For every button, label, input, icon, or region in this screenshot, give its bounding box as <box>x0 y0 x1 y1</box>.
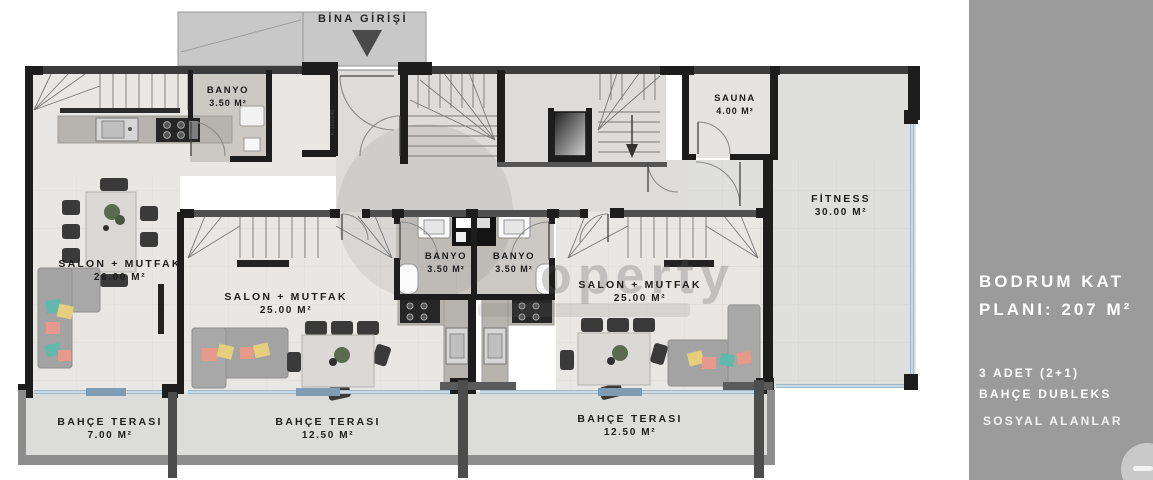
room-label-banyo-1: BANYO 3.50 M² <box>207 84 249 110</box>
room-label-salon-1: SALON + MUTFAK 26.00 M² <box>58 258 181 284</box>
room-label-terrace-2: BAHÇE TERASI 12.50 M² <box>275 416 380 442</box>
sidebar: BODRUM KAT PLANI: 207 M² 3 ADET (2+1) BA… <box>969 0 1153 480</box>
tv-unit-1 <box>158 284 164 334</box>
door-tag-label: K-150/240 <box>330 110 336 135</box>
room-label-salon-3: SALON + MUTFAK 25.00 M² <box>578 279 701 305</box>
room-label-terrace-3: BAHÇE TERASI 12.50 M² <box>577 413 682 439</box>
plan-title-line-2: PLANI: 207 M² <box>979 300 1132 320</box>
room-label-terrace-1: BAHÇE TERASI 7.00 M² <box>57 416 162 442</box>
room-label-salon-2: SALON + MUTFAK 25.00 M² <box>224 291 347 317</box>
plan-info-type: BAHÇE DUBLEKS <box>979 387 1112 401</box>
entrance-label: BİNA GİRİŞİ <box>318 13 408 25</box>
floor-plan-page: K-150/240 BİNA GİRİŞİ BANYO 3.50 M² SAUN… <box>0 0 1153 480</box>
room-label-banyo-3: BANYO 3.50 M² <box>493 250 535 276</box>
plan-info-units: 3 ADET (2+1) <box>979 366 1079 380</box>
room-label-sauna: SAUNA 4.00 M² <box>714 92 756 118</box>
room-label-banyo-2: BANYO 3.50 M² <box>425 250 467 276</box>
watermark-subtext-blur <box>478 303 690 317</box>
floor-plan-drawing: K-150/240 <box>0 0 969 480</box>
room-label-fitness: FİTNESS 30.00 M² <box>811 193 871 219</box>
plan-title-line-1: BODRUM KAT <box>979 272 1124 292</box>
plan-info-social: SOSYAL ALANLAR <box>983 414 1123 428</box>
